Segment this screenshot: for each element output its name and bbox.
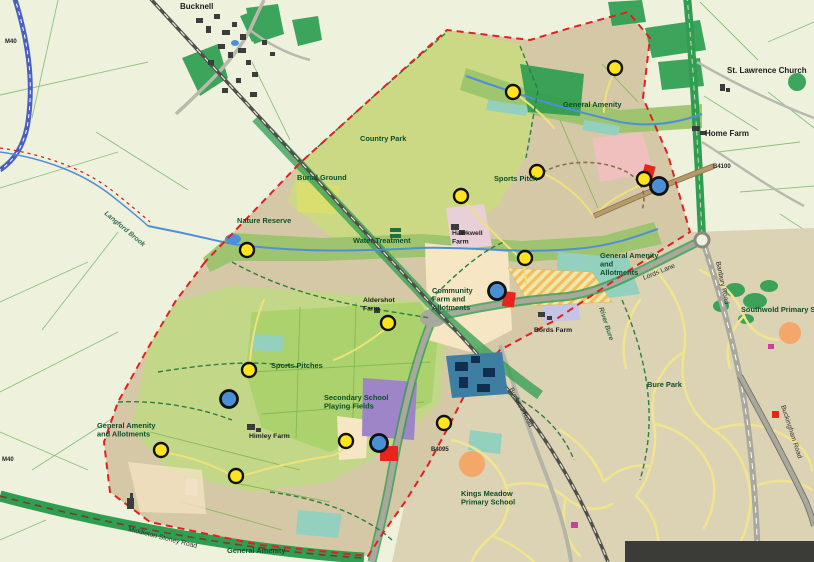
map-label: Water Treatment	[353, 236, 411, 245]
map-label: Kings MeadowPrimary School	[461, 489, 515, 507]
cream-patch	[128, 462, 206, 514]
roundabout	[695, 233, 709, 247]
map-label: Bords Farm	[534, 327, 572, 334]
map-canvas[interactable]: BucknellSt. Lawrence ChurchHome FarmGene…	[0, 0, 814, 562]
map-label: Burial Ground	[297, 173, 347, 182]
map-label: Bucknell	[180, 2, 213, 11]
map-label: Country Park	[360, 134, 407, 143]
yellow-marker[interactable]	[154, 443, 168, 457]
map-label: Himley Farm	[249, 433, 290, 440]
teal-patch	[296, 510, 342, 538]
bottom-right-overlay-panel	[625, 541, 814, 562]
yellow-marker[interactable]	[506, 85, 520, 99]
yellow-marker[interactable]	[381, 316, 395, 330]
nature-reserve-pond	[225, 234, 241, 244]
blue-marker[interactable]	[651, 178, 668, 195]
map-label: General Amenity	[227, 546, 286, 555]
magenta-patch	[768, 344, 774, 349]
depot-buildings	[446, 352, 508, 398]
teal-patch	[250, 334, 284, 352]
map-label: Southwold Primary School	[741, 305, 814, 314]
map-label: M40	[2, 457, 14, 463]
map-label: Sports Pitch	[494, 174, 538, 183]
blue-marker[interactable]	[489, 283, 506, 300]
red-site-marker	[772, 411, 779, 418]
map-label: B4100	[713, 164, 731, 170]
blue-marker[interactable]	[371, 435, 388, 452]
teal-patch	[468, 430, 502, 454]
map-label: General Amenityand Allotments	[97, 421, 156, 439]
yellow-marker[interactable]	[437, 416, 451, 430]
map-label: M40	[5, 39, 17, 45]
yellow-marker[interactable]	[242, 363, 256, 377]
map-label: General Amenity	[563, 100, 622, 109]
map-label: Bure Park	[647, 380, 683, 389]
map-label: Nature Reserve	[237, 216, 291, 225]
yellow-marker[interactable]	[608, 61, 622, 75]
yellow-marker[interactable]	[339, 434, 353, 448]
yellow-marker[interactable]	[454, 189, 468, 203]
yellow-marker[interactable]	[229, 469, 243, 483]
map-label: St. Lawrence Church	[727, 66, 807, 75]
map-label: Home Farm	[705, 129, 749, 138]
yellow-marker[interactable]	[637, 172, 651, 186]
playing-field-circle	[459, 451, 485, 477]
yellow-marker[interactable]	[518, 251, 532, 265]
map-label: Sports Pitches	[271, 361, 323, 370]
blue-marker[interactable]	[221, 391, 238, 408]
village-pond	[231, 40, 239, 46]
map-label: B4095	[431, 447, 449, 453]
yellow-marker[interactable]	[240, 243, 254, 257]
playing-field-circle	[779, 322, 801, 344]
map-viewport[interactable]: BucknellSt. Lawrence ChurchHome FarmGene…	[0, 0, 814, 562]
magenta-patch	[571, 522, 578, 528]
